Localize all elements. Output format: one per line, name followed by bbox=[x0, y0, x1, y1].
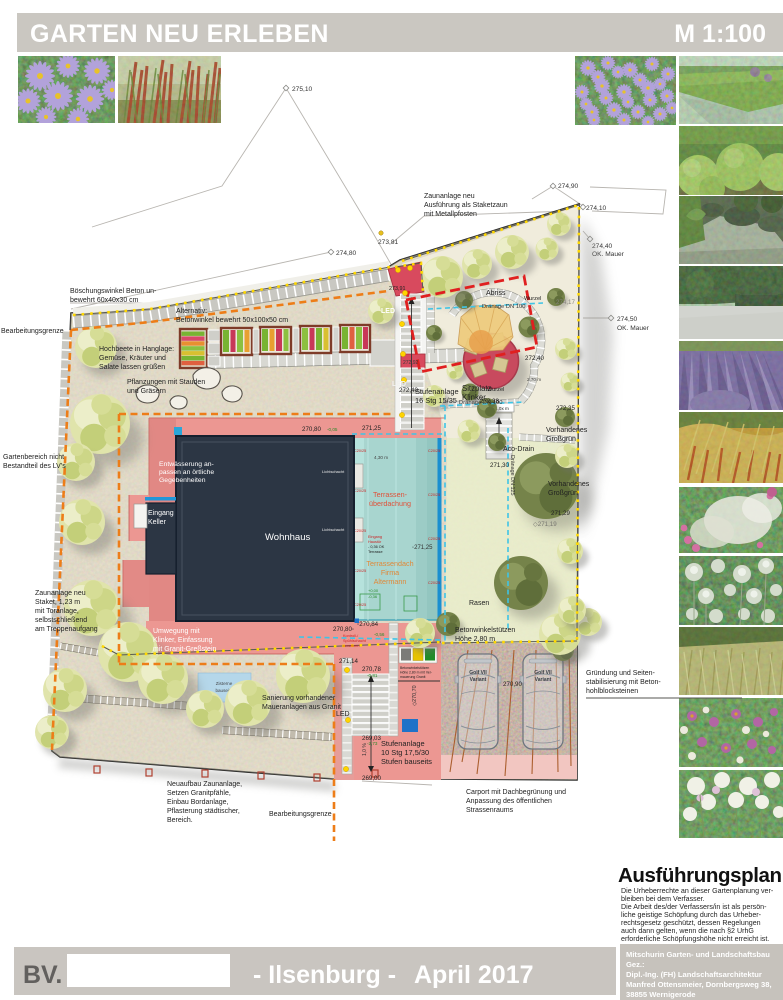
svg-text:April 2017: April 2017 bbox=[414, 961, 534, 989]
svg-text:liche geistige Schöpfung durch: liche geistige Schöpfung durch das Urheb… bbox=[621, 911, 762, 919]
svg-text:GARTEN NEU ERLEBEN: GARTEN NEU ERLEBEN bbox=[30, 20, 329, 48]
svg-text:Spühlschacht: Spühlschacht bbox=[343, 639, 367, 643]
svg-text:Abriss: Abriss bbox=[486, 290, 506, 297]
svg-text:273,81: 273,81 bbox=[378, 239, 399, 246]
svg-text:Rasen: Rasen bbox=[469, 600, 489, 607]
svg-text:272,40: 272,40 bbox=[525, 355, 544, 362]
svg-text:Zisterne: Zisterne bbox=[216, 681, 233, 686]
svg-text:Mitschurin Garten- und Landsch: Mitschurin Garten- und Landschaftsbau bbox=[626, 950, 770, 959]
svg-text:Vorhandenes: Vorhandenes bbox=[548, 481, 590, 488]
svg-text:am Treppenaufgang: am Treppenaufgang bbox=[35, 626, 98, 633]
svg-text:mauerung Granit: mauerung Granit bbox=[400, 675, 426, 679]
svg-text:Stufenanlage: Stufenanlage bbox=[415, 387, 459, 396]
svg-text:Terrassendach: Terrassendach bbox=[366, 559, 413, 568]
svg-text:Wurzel: Wurzel bbox=[487, 387, 504, 393]
svg-text:Manfred Ottensmeier, Dornbergs: Manfred Ottensmeier, Dornbergsweg 38, bbox=[626, 980, 772, 989]
svg-text:C20/25: C20/25 bbox=[354, 569, 366, 573]
svg-text:Betonwinkelstützen: Betonwinkelstützen bbox=[400, 666, 429, 670]
svg-text:271,25: 271,25 bbox=[362, 425, 381, 432]
svg-text:Sanierung vorhandener: Sanierung vorhandener bbox=[262, 695, 336, 702]
svg-text:Altermann: Altermann bbox=[374, 577, 407, 586]
svg-text:274,50: 274,50 bbox=[617, 316, 638, 323]
svg-text:Pflanzungen mit Stauden: Pflanzungen mit Stauden bbox=[127, 379, 205, 386]
svg-text:Terrasse: Terrasse bbox=[368, 550, 383, 554]
svg-text:C20/25: C20/25 bbox=[428, 581, 440, 585]
svg-text:-0,56: -0,56 bbox=[374, 632, 385, 637]
svg-text:LED: LED bbox=[381, 308, 395, 315]
svg-text:C20/25: C20/25 bbox=[354, 529, 366, 533]
svg-text:- 0,36 OK: - 0,36 OK bbox=[368, 545, 385, 549]
svg-text:Variant: Variant bbox=[535, 677, 552, 683]
svg-text:16 Stg 15/35: 16 Stg 15/35 bbox=[415, 396, 457, 405]
svg-text:passen an örtliche: passen an örtliche bbox=[159, 469, 214, 476]
svg-text:Bereich.: Bereich. bbox=[167, 817, 193, 824]
svg-text:Stufen bauseits: Stufen bauseits bbox=[381, 757, 432, 766]
svg-text:270,80◦: 270,80◦ bbox=[333, 626, 354, 633]
svg-text:Firma: Firma bbox=[381, 568, 399, 577]
svg-text:erforderliche Schöpfungshöhe n: erforderliche Schöpfungshöhe nicht errei… bbox=[621, 935, 769, 943]
svg-text:- Ilsenburg -: - Ilsenburg - bbox=[253, 961, 396, 989]
svg-text:Gez.:: Gez.: bbox=[626, 960, 645, 969]
svg-text:+0,00: +0,00 bbox=[368, 588, 379, 593]
svg-text:Stufenanlage: Stufenanlage bbox=[381, 739, 425, 748]
svg-text:Alternativ:: Alternativ: bbox=[176, 308, 207, 315]
svg-text:271,30: 271,30 bbox=[490, 462, 509, 469]
svg-text:-2,73: -2,73 bbox=[367, 741, 378, 746]
svg-text:Die Urheberrechte an dieser Ga: Die Urheberrechte an dieser Gartenplanun… bbox=[621, 887, 774, 895]
svg-text:Dipl.-Ing. (FH) Landschaftsarc: Dipl.-Ing. (FH) Landschaftsarchitektur bbox=[626, 970, 762, 979]
svg-text:Wohnhaus: Wohnhaus bbox=[265, 532, 310, 543]
svg-text:M 1:100: M 1:100 bbox=[674, 20, 766, 48]
svg-text:272,35: 272,35 bbox=[556, 405, 575, 412]
svg-text:-0,81: -0,81 bbox=[367, 673, 378, 678]
svg-text:mit Granit-Greßstein: mit Granit-Greßstein bbox=[153, 646, 217, 653]
svg-text:Kontroll-/: Kontroll-/ bbox=[343, 634, 359, 638]
svg-text:C20/25: C20/25 bbox=[354, 489, 366, 493]
svg-text:selbstschließend: selbstschließend bbox=[35, 617, 87, 624]
svg-text:275,10: 275,10 bbox=[292, 86, 313, 93]
svg-text:Bearbeitungsgrenze: Bearbeitungsgrenze bbox=[269, 811, 332, 818]
svg-text:Aco-Drain: Aco-Drain bbox=[503, 446, 534, 453]
svg-text:10 Stg 17,5/30: 10 Stg 17,5/30 bbox=[381, 748, 429, 757]
svg-text:Betonwinkelstützen: Betonwinkelstützen bbox=[455, 627, 515, 634]
svg-text:-0,36: -0,36 bbox=[368, 594, 378, 599]
svg-text:274,10: 274,10 bbox=[586, 205, 607, 212]
svg-text:Großgrün: Großgrün bbox=[546, 436, 576, 443]
svg-text:Bestandteil des LV's: Bestandteil des LV's bbox=[3, 463, 66, 470]
svg-text:Terrassen-: Terrassen- bbox=[373, 490, 408, 499]
svg-text:Die Arbeit des/der Verfassers/: Die Arbeit des/der Verfassers/in ist als… bbox=[621, 903, 767, 911]
svg-text:Lichtschacht: Lichtschacht bbox=[322, 527, 345, 532]
svg-text:Gründung und Seiten-: Gründung und Seiten- bbox=[586, 670, 656, 677]
svg-text:Wurzel: Wurzel bbox=[524, 296, 541, 302]
svg-text:C20/25: C20/25 bbox=[428, 449, 440, 453]
svg-text:Eingang: Eingang bbox=[148, 510, 174, 517]
svg-text:Gegebenheiten: Gegebenheiten bbox=[159, 477, 206, 484]
svg-text:auch dann gelten, wenn die nac: auch dann gelten, wenn die nach §2 UrhG bbox=[621, 927, 754, 935]
svg-text:Höhe 2,80 m mit Ver-: Höhe 2,80 m mit Ver- bbox=[400, 671, 432, 675]
svg-text:Großgrün: Großgrün bbox=[548, 490, 578, 497]
svg-text:stabilisierung mit Beton-: stabilisierung mit Beton- bbox=[586, 679, 661, 686]
svg-text:Haustür: Haustür bbox=[368, 540, 382, 544]
svg-text:Neuaufbau Zaunanlage,: Neuaufbau Zaunanlage, bbox=[167, 781, 242, 788]
svg-text:274,17: 274,17 bbox=[556, 299, 575, 306]
svg-text:C20/25: C20/25 bbox=[428, 493, 440, 497]
svg-text:mit Metallpfosten: mit Metallpfosten bbox=[424, 211, 477, 218]
svg-text:2,70 m: 2,70 m bbox=[527, 377, 541, 382]
svg-text:Bearbeitungsgrenze: Bearbeitungsgrenze bbox=[1, 328, 64, 335]
svg-text:271,14: 271,14 bbox=[339, 658, 358, 665]
svg-text:Strassenraums: Strassenraums bbox=[466, 807, 514, 814]
svg-text:bewehrt 60x40x30 cm: bewehrt 60x40x30 cm bbox=[70, 297, 139, 304]
svg-text:Setzen Granitpfähle,: Setzen Granitpfähle, bbox=[167, 790, 231, 797]
svg-text:hohlblocksteinen: hohlblocksteinen bbox=[586, 688, 638, 695]
svg-text:Einbau Bordanlage,: Einbau Bordanlage, bbox=[167, 799, 229, 806]
svg-text:-0,05: -0,05 bbox=[327, 427, 338, 432]
svg-text:Anpassung des öffentlichen: Anpassung des öffentlichen bbox=[466, 798, 552, 805]
svg-text:Hochbeete in Hanglage:: Hochbeete in Hanglage: bbox=[99, 346, 174, 353]
svg-text:272,38: 272,38 bbox=[480, 398, 499, 405]
svg-text:mit Toranlage,: mit Toranlage, bbox=[35, 608, 79, 615]
svg-text:Entwässerung an-: Entwässerung an- bbox=[159, 461, 214, 468]
svg-text:rechtsgesetz geschützt, dessen: rechtsgesetz geschützt, dessen Regelunge… bbox=[621, 919, 761, 927]
svg-text:Lichtschacht: Lichtschacht bbox=[322, 469, 345, 474]
svg-text:Höhe 2,80 m: Höhe 2,80 m bbox=[455, 636, 495, 643]
svg-text:C20/25: C20/25 bbox=[354, 603, 366, 607]
svg-text:Vorhandenes: Vorhandenes bbox=[546, 427, 588, 434]
svg-text:Zaunanlage neu: Zaunanlage neu bbox=[35, 590, 86, 597]
svg-text:272,40: 272,40 bbox=[399, 387, 418, 394]
svg-text:270,80: 270,80 bbox=[302, 426, 321, 433]
svg-text:Staket, 1,23 m: Staket, 1,23 m bbox=[35, 599, 80, 606]
svg-text:Keller: Keller bbox=[148, 519, 167, 526]
svg-text:Pflasterung städtischer,: Pflasterung städtischer, bbox=[167, 808, 240, 815]
svg-text:Ausführung als Staketzaun: Ausführung als Staketzaun bbox=[424, 202, 508, 209]
svg-text:überdachung: überdachung bbox=[369, 499, 411, 508]
svg-text:C20/25: C20/25 bbox=[428, 537, 440, 541]
svg-text:Zaunanlage neu: Zaunanlage neu bbox=[424, 193, 475, 200]
svg-text:Variant: Variant bbox=[470, 677, 487, 683]
svg-text:Klinker, Einfassung: Klinker, Einfassung bbox=[153, 637, 213, 644]
svg-text:◇270,70: ◇270,70 bbox=[412, 685, 418, 706]
svg-text:Böschungswinkel Beton un-: Böschungswinkel Beton un- bbox=[70, 288, 157, 295]
svg-text:Salate lassen grüßen: Salate lassen grüßen bbox=[99, 364, 165, 371]
svg-text:Umwegung mit: Umwegung mit bbox=[153, 628, 200, 635]
svg-text:bleiben bei dem Verfasser.: bleiben bei dem Verfasser. bbox=[621, 895, 705, 903]
svg-text:Gartenbereich nicht: Gartenbereich nicht bbox=[3, 454, 64, 461]
svg-text:versetzen: versetzen bbox=[343, 644, 359, 648]
svg-text:270,78: 270,78 bbox=[362, 666, 381, 673]
svg-text:Eingang: Eingang bbox=[368, 535, 382, 539]
svg-text:271,29: 271,29 bbox=[551, 510, 570, 517]
svg-text:und Gräsern: und Gräsern bbox=[127, 388, 166, 395]
svg-text:Dränage DN 100: Dränage DN 100 bbox=[482, 304, 526, 310]
svg-text:272,92: 272,92 bbox=[403, 360, 419, 366]
svg-text:Dränage DN 125: Dränage DN 125 bbox=[509, 455, 515, 495]
svg-text:38855 Wernigerode: 38855 Wernigerode bbox=[626, 990, 696, 999]
svg-text:274,80: 274,80 bbox=[336, 250, 357, 257]
svg-text:◦270,84: ◦270,84 bbox=[357, 621, 379, 628]
svg-text:Maueranlagen aus Granit: Maueranlagen aus Granit bbox=[262, 704, 341, 711]
svg-text:◇271,19: ◇271,19 bbox=[533, 521, 557, 528]
svg-text:C20/25: C20/25 bbox=[354, 449, 366, 453]
svg-text:◦271,25: ◦271,25 bbox=[412, 545, 433, 551]
svg-text:Golf VII: Golf VII bbox=[469, 670, 487, 676]
svg-text:Gemüse, Kräuter und: Gemüse, Kräuter und bbox=[99, 355, 166, 362]
svg-text:4,30 m: 4,30 m bbox=[374, 455, 388, 460]
svg-text:OK. Mauer: OK. Mauer bbox=[617, 325, 650, 332]
svg-text:274,90: 274,90 bbox=[558, 183, 579, 190]
svg-text:Betonwinkel bewehrt 50x100x50: Betonwinkel bewehrt 50x100x50 cm bbox=[176, 317, 288, 324]
svg-text:BV.: BV. bbox=[23, 961, 62, 989]
svg-text:270,90: 270,90 bbox=[503, 681, 522, 688]
svg-text:273,91: 273,91 bbox=[389, 286, 406, 292]
svg-text:Ausführungsplan: Ausführungsplan bbox=[618, 864, 782, 887]
svg-text:Golf VII: Golf VII bbox=[534, 670, 552, 676]
svg-text:Carport mit Dachbegrünung und: Carport mit Dachbegrünung und bbox=[466, 789, 566, 796]
svg-text:LED: LED bbox=[336, 711, 350, 718]
